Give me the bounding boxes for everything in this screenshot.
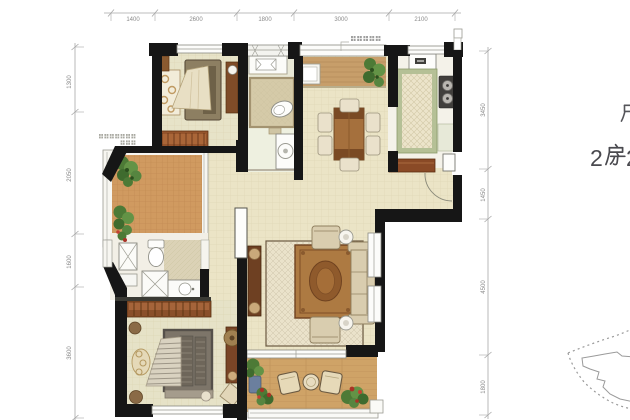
svg-text:3600: 3600 (67, 346, 73, 360)
svg-text:2: 2 (626, 145, 630, 171)
svg-text:1400: 1400 (126, 17, 140, 23)
svg-text:3450: 3450 (481, 103, 487, 117)
svg-text:3000: 3000 (334, 17, 348, 23)
svg-text:2100: 2100 (414, 17, 428, 23)
svg-text:1800: 1800 (481, 380, 487, 394)
svg-text:2600: 2600 (189, 17, 203, 23)
svg-text:1800: 1800 (258, 17, 272, 23)
svg-text:1300: 1300 (67, 75, 73, 89)
svg-text:2050: 2050 (67, 168, 73, 182)
svg-text:1450: 1450 (481, 188, 487, 202)
svg-text:2: 2 (590, 145, 603, 171)
svg-text:1600: 1600 (67, 255, 73, 269)
svg-text:4500: 4500 (481, 280, 487, 294)
